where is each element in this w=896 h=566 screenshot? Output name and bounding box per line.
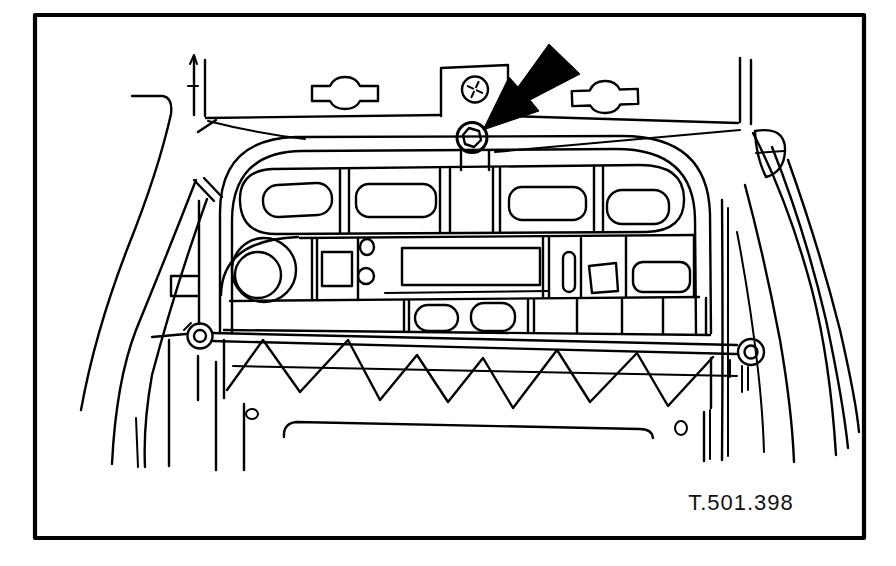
rounded-button (633, 262, 690, 292)
left-brace-diagonal (194, 180, 214, 201)
lower-panel (246, 409, 687, 438)
figure-reference-code: T.501.398 (688, 490, 794, 515)
a-pillar-curve (112, 180, 196, 464)
figure-canvas: T.501.398 (0, 0, 896, 566)
grommet-left (188, 324, 213, 349)
small-button (589, 263, 618, 293)
defroster-slot-right (571, 80, 638, 114)
quarter-window-line (756, 151, 784, 153)
radio-control-panel (221, 235, 699, 302)
grommet-left-inner (194, 330, 206, 342)
indicator-dot (360, 239, 374, 255)
left-pillar-lines (81, 55, 216, 467)
a-pillar-curve (136, 418, 138, 467)
small-hole (675, 421, 687, 435)
a-pillar-curve (772, 147, 848, 448)
panel-bottom-line (385, 291, 548, 293)
zigzag-cross-line (233, 366, 737, 376)
small-hole (246, 409, 258, 419)
grommet-right (738, 339, 764, 365)
vent-opening (509, 187, 586, 220)
a-pillar-curve (788, 160, 859, 432)
vent-opening (356, 184, 436, 217)
right-pillar-lines (737, 58, 859, 462)
dash-edge-line (508, 116, 738, 123)
switch-row (224, 298, 710, 335)
dash-edge-line (206, 115, 441, 118)
oval-button (471, 303, 515, 331)
display-window (402, 248, 540, 285)
console-right-edge (722, 200, 723, 460)
lower-panel-edge (284, 422, 653, 438)
vent-opening (262, 182, 333, 218)
bracket-screw-icon (462, 77, 488, 103)
indicator-dot (358, 268, 374, 284)
defroster-slot-left (312, 77, 378, 109)
panel-bottom-line (230, 297, 699, 301)
dashboard-technical-diagram: T.501.398 (0, 0, 896, 566)
torn-edge-zigzag (224, 340, 737, 408)
square-button (322, 252, 352, 286)
vertical-slot (563, 252, 575, 292)
air-vent-row (240, 165, 684, 234)
oval-button (415, 305, 458, 331)
trim-line (152, 334, 186, 337)
vent-opening (607, 190, 669, 224)
a-pillar-curve (145, 199, 207, 467)
rotary-knob-inner (235, 252, 281, 298)
screw-cross-slots (464, 78, 486, 100)
